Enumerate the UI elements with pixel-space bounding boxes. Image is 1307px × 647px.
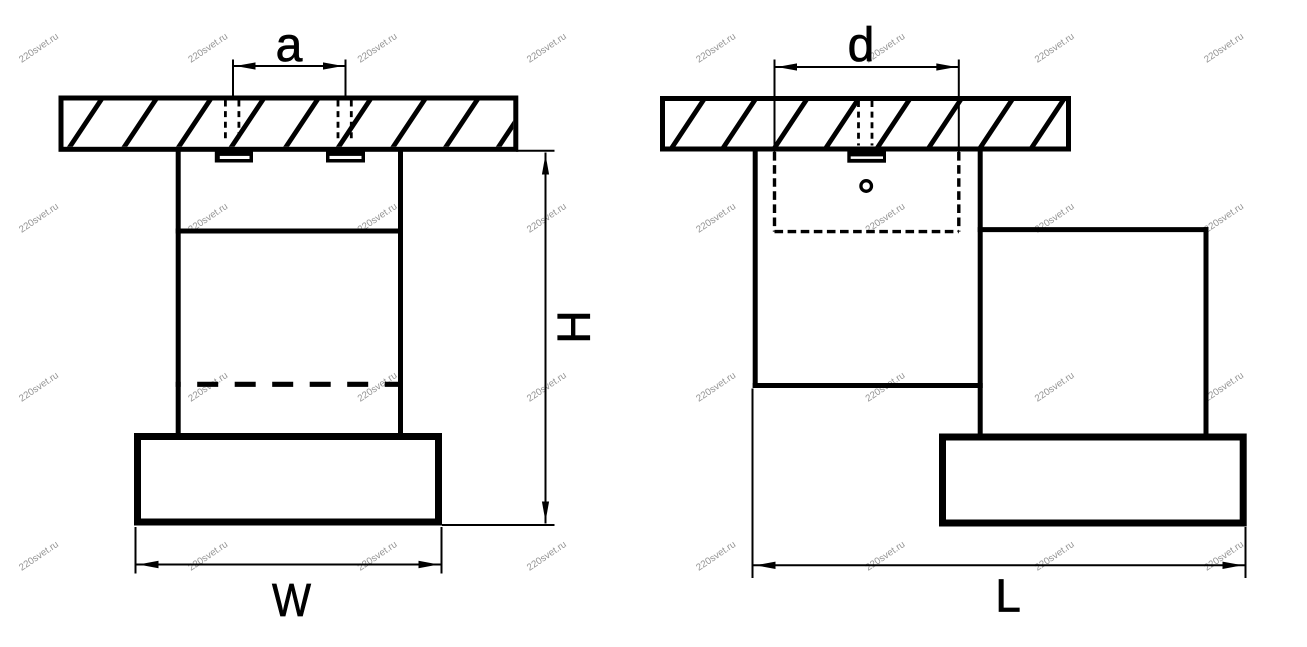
svg-text:a: a — [276, 19, 303, 72]
svg-text:L: L — [995, 570, 1021, 622]
svg-text:d: d — [848, 19, 875, 72]
svg-text:H: H — [548, 310, 600, 343]
svg-text:W: W — [272, 574, 312, 626]
